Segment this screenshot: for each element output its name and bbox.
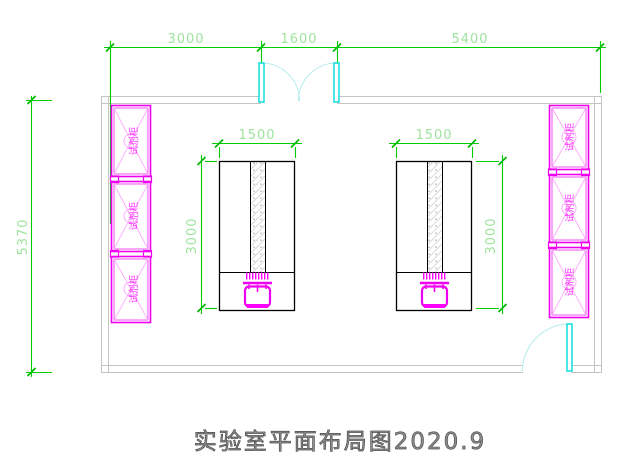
room-walls (101, 96, 602, 373)
reagent-cabinet (112, 106, 151, 177)
reagent-cabinet (112, 182, 151, 252)
right-reagent-cabinets (549, 106, 590, 318)
floorplan-drawing (0, 0, 619, 469)
door-leaf-right (334, 63, 339, 102)
right-sink (420, 273, 449, 309)
reagent-shelf-hatch (251, 162, 266, 273)
reagent-cabinet (550, 175, 589, 243)
left-sink (243, 273, 272, 309)
door-leaf-left (259, 63, 264, 102)
door-leaf (567, 324, 572, 371)
floorplan-canvas: 3000 1600 5400 5370 1500 3000 1500 3000 … (0, 0, 619, 469)
reagent-cabinet (550, 106, 589, 170)
top-double-door (259, 63, 339, 102)
reagent-shelf-hatch (428, 162, 443, 273)
dimension-lines (26, 41, 606, 377)
left-reagent-cabinets (111, 106, 152, 323)
reagent-cabinet (112, 257, 151, 323)
reagent-cabinet (550, 248, 589, 318)
bottom-right-door (523, 324, 573, 371)
